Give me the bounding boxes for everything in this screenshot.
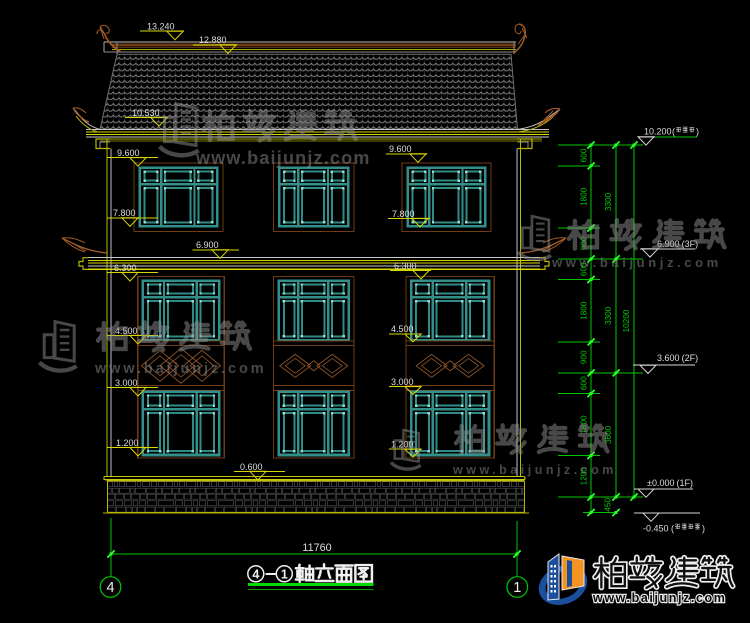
svg-text:6.900: 6.900	[196, 240, 219, 250]
svg-text:900: 900	[580, 350, 589, 364]
svg-text:10200: 10200	[622, 309, 631, 332]
svg-text:1: 1	[513, 580, 521, 596]
svg-text:3.000: 3.000	[115, 378, 138, 388]
svg-text:www.baijunjz.com: www.baijunjz.com	[452, 463, 617, 477]
svg-text:(2F): (2F)	[682, 353, 699, 363]
svg-text:3300: 3300	[604, 192, 613, 211]
svg-text:1: 1	[281, 567, 288, 581]
svg-text:4.500: 4.500	[391, 324, 414, 334]
svg-text:1800: 1800	[580, 301, 589, 320]
svg-text:0.600: 0.600	[240, 462, 263, 472]
svg-text:6.300: 6.300	[114, 263, 137, 273]
svg-text:10.530: 10.530	[132, 108, 160, 118]
svg-text:4: 4	[106, 580, 114, 596]
svg-text:(: (	[672, 127, 675, 137]
svg-text:): )	[696, 127, 699, 137]
svg-text:-0.450: -0.450	[643, 524, 669, 534]
svg-text:9.600: 9.600	[389, 144, 412, 154]
svg-text:3.600: 3.600	[657, 353, 680, 363]
svg-text:3300: 3300	[604, 306, 613, 325]
svg-text:1.200: 1.200	[116, 438, 139, 448]
svg-text:(: (	[671, 524, 674, 534]
svg-text:(1F): (1F)	[677, 478, 694, 488]
svg-text:9.600: 9.600	[117, 148, 140, 158]
svg-text:7.800: 7.800	[392, 209, 415, 219]
svg-text:www.baijunjz.com: www.baijunjz.com	[195, 148, 371, 168]
svg-text:): )	[702, 524, 705, 534]
svg-text:10.200: 10.200	[644, 127, 672, 137]
svg-text:www.baijunjz.com: www.baijunjz.com	[551, 255, 722, 270]
svg-text:7.800: 7.800	[113, 208, 136, 218]
svg-text:3.000: 3.000	[391, 377, 414, 387]
svg-text:1800: 1800	[580, 187, 589, 206]
svg-text:450: 450	[604, 497, 613, 511]
svg-text:11760: 11760	[302, 542, 331, 554]
svg-text:4: 4	[252, 567, 259, 581]
svg-text:600: 600	[580, 376, 589, 390]
svg-text:600: 600	[580, 148, 589, 162]
svg-text:13.240: 13.240	[147, 22, 175, 32]
svg-text:12.880: 12.880	[199, 35, 227, 45]
svg-text:6.300: 6.300	[394, 261, 417, 271]
svg-text:±0.000: ±0.000	[647, 478, 674, 488]
svg-text:www.baijunjz.com: www.baijunjz.com	[592, 591, 726, 605]
svg-text:www.baijunjz.com: www.baijunjz.com	[94, 361, 267, 377]
